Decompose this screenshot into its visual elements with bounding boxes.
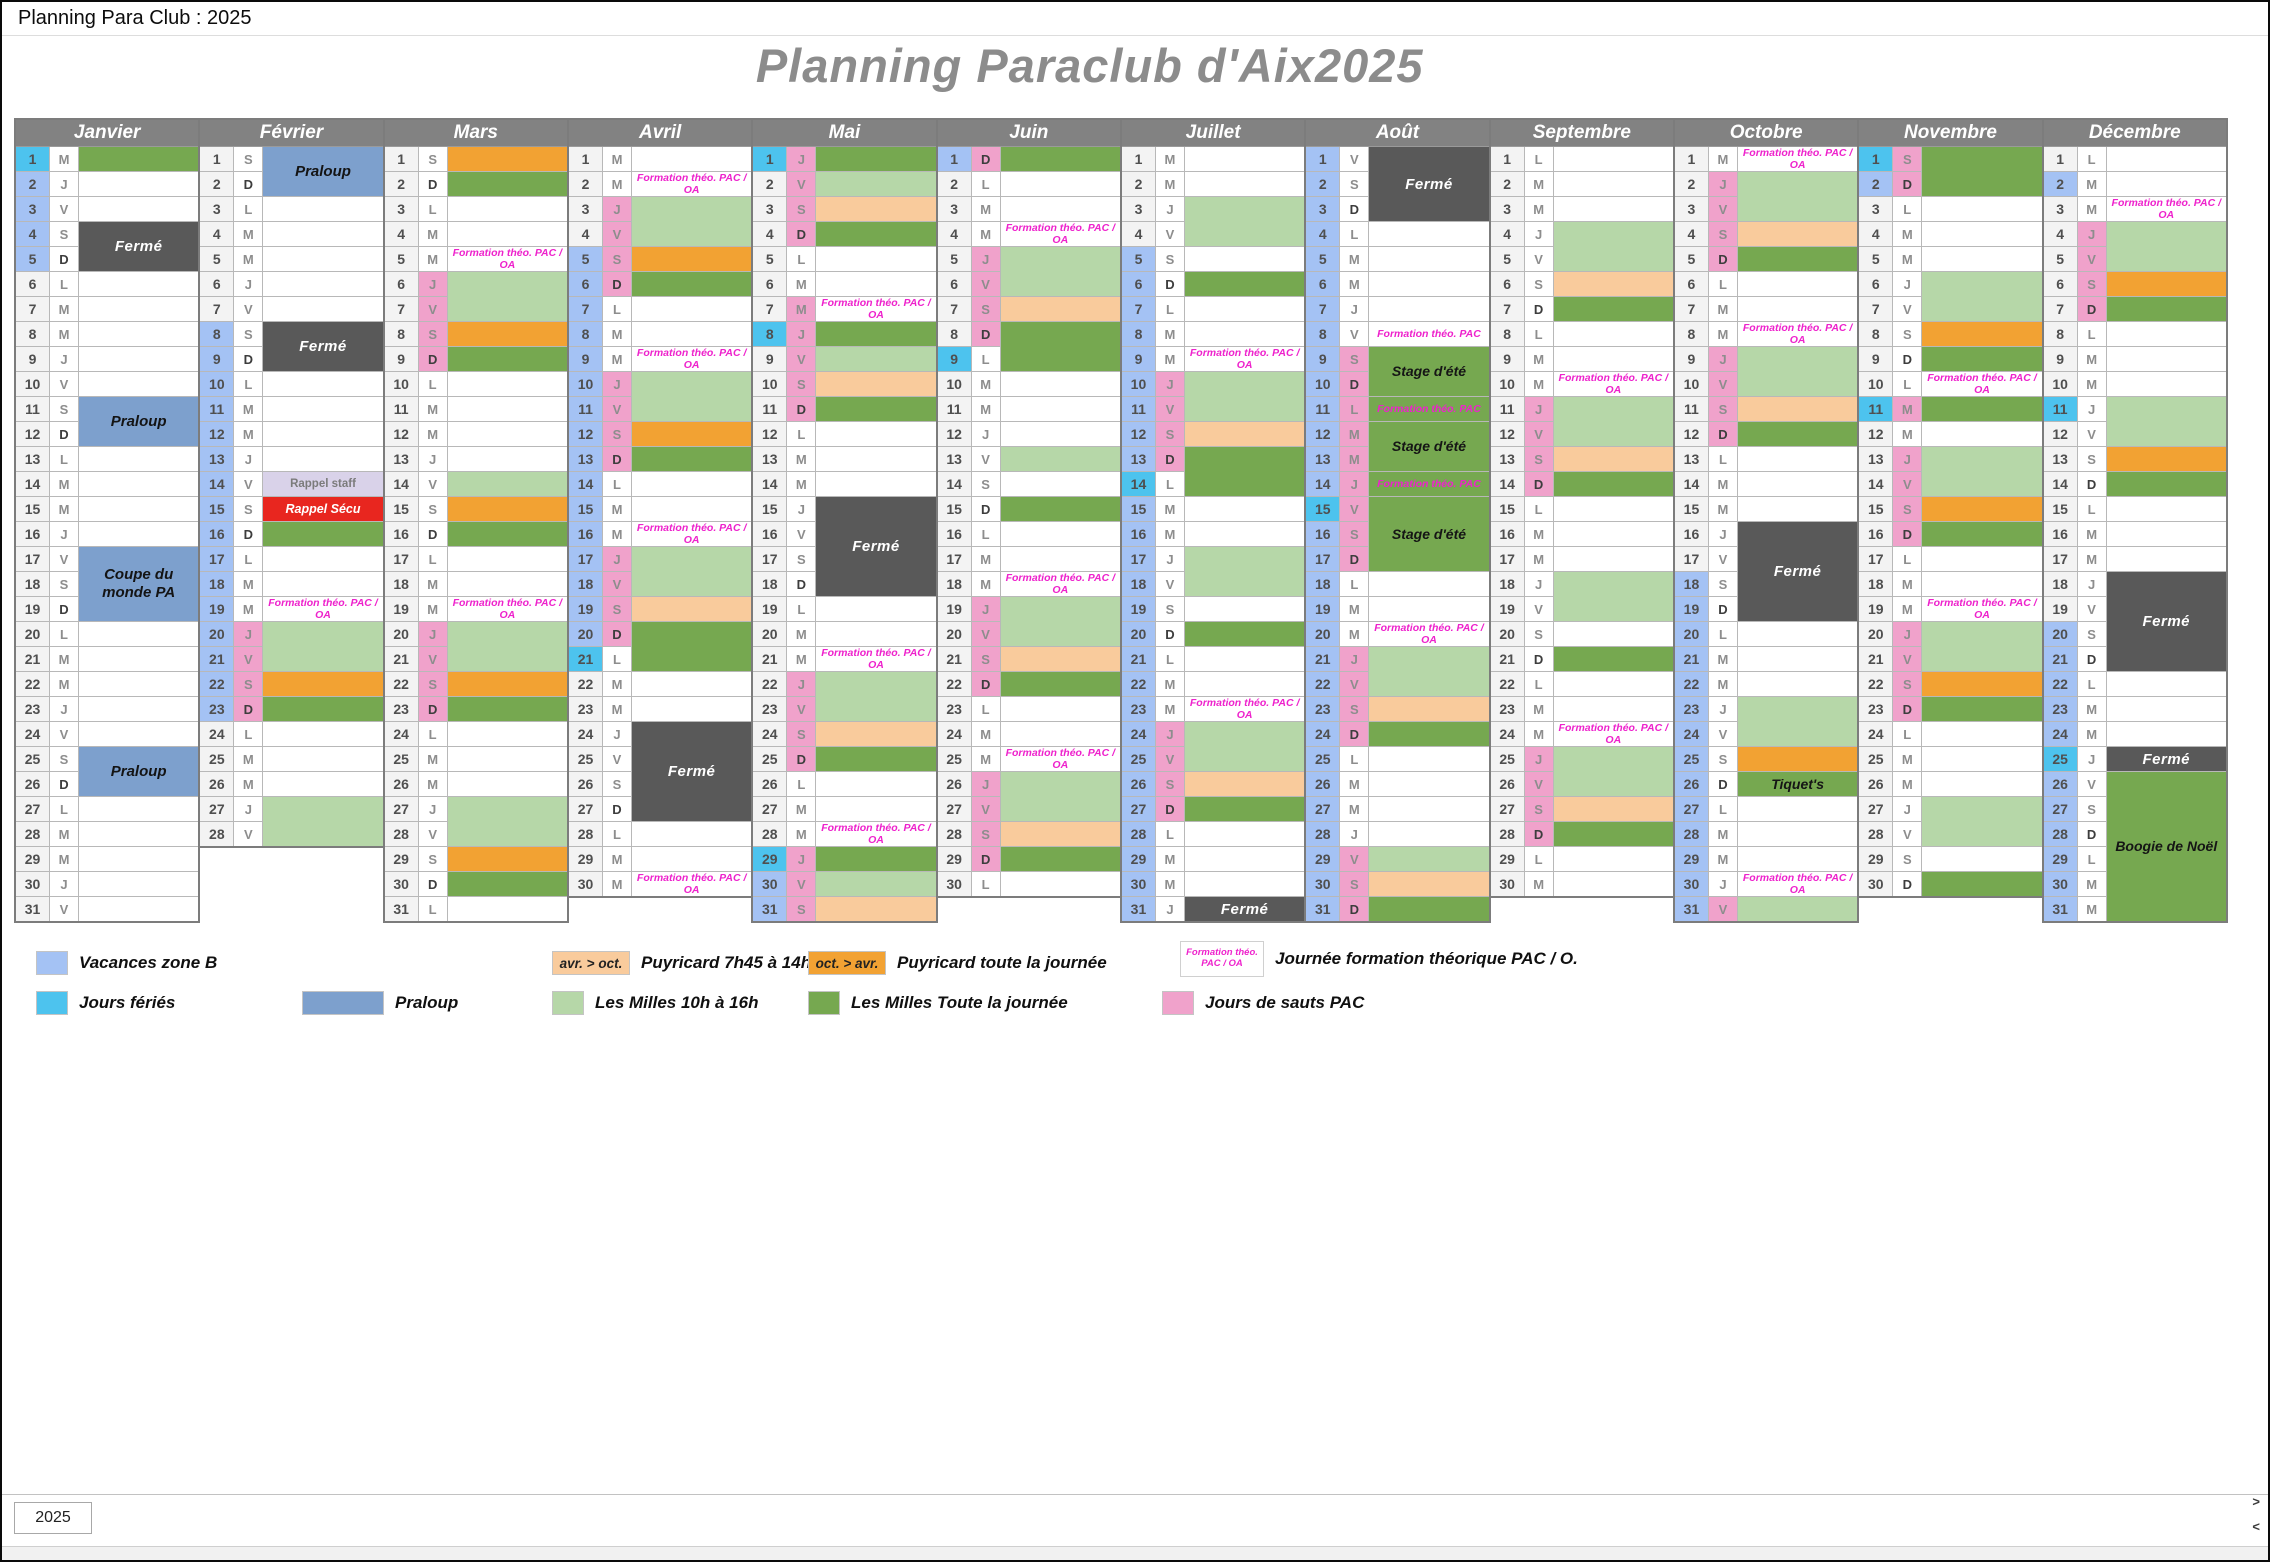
day-letter-cell[interactable]: J [1893,447,1921,471]
event-cell[interactable] [79,272,198,296]
day-number-cell[interactable]: 25 [16,747,49,771]
day-letter-cell[interactable]: L [603,822,631,846]
event-cell[interactable] [1185,272,1304,296]
day-letter-cell[interactable]: M [234,772,262,796]
day-number-cell[interactable]: 22 [1675,672,1708,696]
day-letter-cell[interactable]: S [1893,322,1921,346]
day-letter-cell[interactable]: S [2078,447,2106,471]
day-number-cell[interactable]: 3 [16,197,49,221]
day-letter-cell[interactable]: M [787,472,815,496]
day-number-cell[interactable]: 5 [1859,247,1892,271]
day-number-cell[interactable]: 28 [1491,822,1524,846]
day-letter-cell[interactable]: M [1156,522,1184,546]
day-number-cell[interactable]: 19 [1675,597,1708,621]
day-number-cell[interactable]: 7 [200,297,233,321]
event-cell[interactable] [1738,647,1857,671]
day-number-cell[interactable]: 8 [1122,322,1155,346]
event-cell[interactable] [79,897,198,921]
event-cell[interactable]: Boogie de Noël [2107,772,2226,921]
day-number-cell[interactable]: 13 [1491,447,1524,471]
day-number-cell[interactable]: 18 [1491,572,1524,596]
day-letter-cell[interactable]: J [419,272,447,296]
day-number-cell[interactable]: 2 [938,172,971,196]
day-number-cell[interactable]: 24 [1122,722,1155,746]
month-header[interactable]: Avril [569,120,751,147]
day-number-cell[interactable]: 15 [569,497,602,521]
event-cell[interactable] [1738,222,1857,246]
day-letter-cell[interactable]: V [50,547,78,571]
day-number-cell[interactable]: 28 [938,822,971,846]
day-letter-cell[interactable]: V [787,697,815,721]
event-cell[interactable] [448,847,567,871]
day-number-cell[interactable]: 11 [569,397,602,421]
month-header[interactable]: Novembre [1859,120,2041,147]
event-cell[interactable] [816,147,935,171]
day-letter-cell[interactable]: M [2078,172,2106,196]
day-letter-cell[interactable]: J [972,597,1000,621]
day-number-cell[interactable]: 23 [1491,697,1524,721]
event-cell[interactable]: Formation théo. PAC / OA [1738,872,1857,896]
event-cell[interactable] [1185,622,1304,646]
event-cell[interactable] [1001,647,1120,671]
day-number-cell[interactable]: 22 [2044,672,2077,696]
event-cell[interactable]: Rappel Sécu [263,497,382,521]
event-cell[interactable] [263,722,382,746]
day-letter-cell[interactable]: M [603,497,631,521]
event-cell[interactable] [263,672,382,696]
event-cell[interactable] [1554,447,1673,471]
day-number-cell[interactable]: 31 [1122,897,1155,921]
day-number-cell[interactable]: 20 [1491,622,1524,646]
day-letter-cell[interactable]: M [234,747,262,771]
day-letter-cell[interactable]: V [419,297,447,321]
day-letter-cell[interactable]: L [1893,197,1921,221]
day-letter-cell[interactable]: S [50,747,78,771]
day-number-cell[interactable]: 15 [2044,497,2077,521]
day-letter-cell[interactable]: M [787,297,815,321]
day-number-cell[interactable]: 27 [569,797,602,821]
day-number-cell[interactable]: 15 [1675,497,1708,521]
event-cell[interactable] [1738,672,1857,696]
event-cell[interactable] [1554,547,1673,571]
day-letter-cell[interactable]: M [972,222,1000,246]
day-letter-cell[interactable]: S [234,672,262,696]
day-letter-cell[interactable]: M [1709,147,1737,171]
day-letter-cell[interactable]: L [787,422,815,446]
month-header[interactable]: Février [200,120,382,147]
event-cell[interactable] [1554,472,1673,496]
event-cell[interactable] [1185,722,1304,771]
day-letter-cell[interactable]: D [50,422,78,446]
day-number-cell[interactable]: 16 [1306,522,1339,546]
event-cell[interactable]: Formation théo. PAC / OA [816,297,935,321]
event-cell[interactable] [263,247,382,271]
day-letter-cell[interactable]: L [972,697,1000,721]
day-number-cell[interactable]: 20 [2044,622,2077,646]
day-number-cell[interactable]: 8 [938,322,971,346]
day-letter-cell[interactable]: V [1893,647,1921,671]
event-cell[interactable] [1738,797,1857,821]
event-cell[interactable] [1922,497,2041,521]
day-letter-cell[interactable]: J [603,197,631,221]
day-letter-cell[interactable]: S [787,722,815,746]
day-letter-cell[interactable]: M [419,222,447,246]
event-cell[interactable]: Formation théo. PAC / OA [1185,347,1304,371]
day-number-cell[interactable]: 31 [1675,897,1708,921]
day-number-cell[interactable]: 11 [1491,397,1524,421]
event-cell[interactable] [448,547,567,571]
day-letter-cell[interactable]: L [1340,222,1368,246]
event-cell[interactable] [1922,247,2041,271]
event-cell[interactable] [1922,422,2041,446]
day-number-cell[interactable]: 31 [16,897,49,921]
day-letter-cell[interactable]: L [2078,847,2106,871]
day-number-cell[interactable]: 31 [1306,897,1339,921]
day-letter-cell[interactable]: V [1156,572,1184,596]
day-number-cell[interactable]: 8 [753,322,786,346]
day-number-cell[interactable]: 25 [753,747,786,771]
event-cell[interactable] [632,622,751,671]
day-letter-cell[interactable]: D [2078,822,2106,846]
day-number-cell[interactable]: 12 [200,422,233,446]
event-cell[interactable] [632,147,751,171]
event-cell[interactable] [1922,572,2041,596]
event-cell[interactable] [632,372,751,421]
day-number-cell[interactable]: 30 [1122,872,1155,896]
day-letter-cell[interactable]: M [603,697,631,721]
day-number-cell[interactable]: 18 [385,572,418,596]
event-cell[interactable] [448,222,567,246]
day-letter-cell[interactable]: D [50,772,78,796]
day-number-cell[interactable]: 14 [200,472,233,496]
day-number-cell[interactable]: 7 [1122,297,1155,321]
day-number-cell[interactable]: 7 [753,297,786,321]
day-number-cell[interactable]: 19 [1491,597,1524,621]
day-number-cell[interactable]: 20 [1122,622,1155,646]
event-cell[interactable] [1922,522,2041,546]
day-number-cell[interactable]: 26 [16,772,49,796]
day-number-cell[interactable]: 20 [1675,622,1708,646]
day-number-cell[interactable]: 16 [16,522,49,546]
day-number-cell[interactable]: 23 [1122,697,1155,721]
day-letter-cell[interactable]: V [1156,747,1184,771]
day-number-cell[interactable]: 22 [385,672,418,696]
event-cell[interactable] [816,372,935,396]
day-letter-cell[interactable]: V [1709,897,1737,921]
day-number-cell[interactable]: 27 [1306,797,1339,821]
day-number-cell[interactable]: 20 [200,622,233,646]
day-number-cell[interactable]: 21 [1491,647,1524,671]
day-number-cell[interactable]: 26 [1675,772,1708,796]
event-cell[interactable] [1922,672,2041,696]
day-letter-cell[interactable]: M [2078,897,2106,921]
day-letter-cell[interactable]: M [419,772,447,796]
day-number-cell[interactable]: 24 [1491,722,1524,746]
day-letter-cell[interactable]: L [419,547,447,571]
day-number-cell[interactable]: 6 [1306,272,1339,296]
day-letter-cell[interactable]: M [1525,347,1553,371]
day-number-cell[interactable]: 20 [385,622,418,646]
event-cell[interactable] [2107,372,2226,396]
day-number-cell[interactable]: 19 [1306,597,1339,621]
day-letter-cell[interactable]: J [603,547,631,571]
event-cell[interactable] [448,397,567,421]
day-letter-cell[interactable]: M [1709,847,1737,871]
day-number-cell[interactable]: 28 [1675,822,1708,846]
day-number-cell[interactable]: 27 [1675,797,1708,821]
day-letter-cell[interactable]: D [2078,647,2106,671]
event-cell[interactable] [1001,297,1120,321]
event-cell[interactable] [263,447,382,471]
day-letter-cell[interactable]: S [2078,622,2106,646]
day-letter-cell[interactable]: V [1340,672,1368,696]
day-letter-cell[interactable]: L [972,172,1000,196]
day-number-cell[interactable]: 24 [16,722,49,746]
event-cell[interactable] [1738,172,1857,221]
event-cell[interactable] [1738,397,1857,421]
day-number-cell[interactable]: 25 [1491,747,1524,771]
day-letter-cell[interactable]: M [787,647,815,671]
day-number-cell[interactable]: 8 [2044,322,2077,346]
event-cell[interactable] [1185,372,1304,421]
day-letter-cell[interactable]: M [1156,697,1184,721]
event-cell[interactable] [1001,472,1120,496]
day-letter-cell[interactable]: J [234,447,262,471]
day-number-cell[interactable]: 26 [569,772,602,796]
day-number-cell[interactable]: 6 [2044,272,2077,296]
event-cell[interactable]: Formation théo. PAC / OA [1001,572,1120,596]
day-letter-cell[interactable]: M [2078,547,2106,571]
day-letter-cell[interactable]: J [1156,722,1184,746]
event-cell[interactable] [1369,247,1488,271]
day-number-cell[interactable]: 16 [1122,522,1155,546]
day-number-cell[interactable]: 14 [569,472,602,496]
event-cell[interactable] [79,147,198,171]
day-number-cell[interactable]: 19 [1859,597,1892,621]
day-number-cell[interactable]: 24 [753,722,786,746]
day-letter-cell[interactable]: L [972,522,1000,546]
event-cell[interactable]: Formation théo. PAC [1369,322,1488,346]
event-cell[interactable]: Fermé [632,722,751,821]
day-letter-cell[interactable]: S [603,422,631,446]
day-number-cell[interactable]: 25 [385,747,418,771]
day-number-cell[interactable]: 1 [938,147,971,171]
event-cell[interactable] [263,422,382,446]
day-letter-cell[interactable]: J [972,422,1000,446]
day-letter-cell[interactable]: J [1709,697,1737,721]
day-number-cell[interactable]: 18 [938,572,971,596]
day-number-cell[interactable]: 13 [1675,447,1708,471]
day-letter-cell[interactable]: D [50,597,78,621]
day-letter-cell[interactable]: L [1525,497,1553,521]
day-number-cell[interactable]: 1 [1306,147,1339,171]
day-number-cell[interactable]: 20 [1306,622,1339,646]
event-cell[interactable] [263,547,382,571]
day-number-cell[interactable]: 14 [16,472,49,496]
day-letter-cell[interactable]: L [2078,497,2106,521]
day-number-cell[interactable]: 31 [753,897,786,921]
event-cell[interactable] [1738,247,1857,271]
event-cell[interactable] [79,722,198,746]
day-letter-cell[interactable]: M [50,847,78,871]
day-number-cell[interactable]: 9 [2044,347,2077,371]
day-number-cell[interactable]: 9 [569,347,602,371]
event-cell[interactable] [1554,222,1673,271]
day-letter-cell[interactable]: S [1340,347,1368,371]
day-number-cell[interactable]: 2 [2044,172,2077,196]
day-number-cell[interactable]: 4 [1859,222,1892,246]
day-number-cell[interactable]: 18 [2044,572,2077,596]
event-cell[interactable] [79,497,198,521]
day-letter-cell[interactable]: V [1709,372,1737,396]
event-cell[interactable] [632,272,751,296]
day-number-cell[interactable]: 13 [569,447,602,471]
day-number-cell[interactable]: 4 [1306,222,1339,246]
event-cell[interactable] [816,672,935,721]
day-letter-cell[interactable]: V [234,822,262,846]
day-letter-cell[interactable]: S [972,297,1000,321]
day-letter-cell[interactable]: M [972,747,1000,771]
day-letter-cell[interactable]: M [2078,522,2106,546]
day-letter-cell[interactable]: V [1340,322,1368,346]
day-number-cell[interactable]: 28 [753,822,786,846]
day-letter-cell[interactable]: L [1893,722,1921,746]
day-letter-cell[interactable]: S [419,322,447,346]
event-cell[interactable]: Formation théo. PAC / OA [632,347,751,371]
event-cell[interactable] [263,272,382,296]
event-cell[interactable] [1922,847,2041,871]
day-number-cell[interactable]: 22 [1491,672,1524,696]
day-number-cell[interactable]: 15 [16,497,49,521]
day-number-cell[interactable]: 15 [753,497,786,521]
day-number-cell[interactable]: 17 [753,547,786,571]
event-cell[interactable] [79,447,198,471]
event-cell[interactable] [1554,672,1673,696]
day-letter-cell[interactable]: V [1525,247,1553,271]
event-cell[interactable] [1001,847,1120,871]
day-number-cell[interactable]: 17 [938,547,971,571]
day-number-cell[interactable]: 12 [2044,422,2077,446]
day-letter-cell[interactable]: J [50,697,78,721]
event-cell[interactable] [448,522,567,546]
day-number-cell[interactable]: 23 [385,697,418,721]
day-letter-cell[interactable]: J [2078,222,2106,246]
day-number-cell[interactable]: 13 [200,447,233,471]
day-letter-cell[interactable]: J [419,797,447,821]
day-letter-cell[interactable]: L [1525,147,1553,171]
day-number-cell[interactable]: 21 [200,647,233,671]
event-cell[interactable] [448,497,567,521]
day-number-cell[interactable]: 23 [2044,697,2077,721]
day-letter-cell[interactable]: M [787,447,815,471]
day-number-cell[interactable]: 27 [2044,797,2077,821]
day-letter-cell[interactable]: M [972,572,1000,596]
event-cell[interactable]: Formation théo. PAC / OA [1738,147,1857,171]
day-number-cell[interactable]: 4 [938,222,971,246]
day-letter-cell[interactable]: M [1893,222,1921,246]
day-letter-cell[interactable]: D [972,497,1000,521]
event-cell[interactable] [1738,447,1857,471]
day-number-cell[interactable]: 4 [200,222,233,246]
day-letter-cell[interactable]: D [1156,272,1184,296]
day-number-cell[interactable]: 3 [385,197,418,221]
event-cell[interactable] [1554,397,1673,446]
day-number-cell[interactable]: 17 [385,547,418,571]
event-cell[interactable] [1922,622,2041,671]
event-cell[interactable]: Formation théo. PAC / OA [448,597,567,621]
event-cell[interactable]: Formation théo. PAC / OA [632,522,751,546]
event-cell[interactable] [1554,872,1673,896]
day-letter-cell[interactable]: V [2078,247,2106,271]
day-letter-cell[interactable]: D [419,697,447,721]
day-letter-cell[interactable]: S [787,897,815,921]
day-number-cell[interactable]: 23 [1675,697,1708,721]
event-cell[interactable] [632,422,751,446]
day-number-cell[interactable]: 30 [1306,872,1339,896]
day-number-cell[interactable]: 13 [2044,447,2077,471]
day-number-cell[interactable]: 12 [1859,422,1892,446]
day-letter-cell[interactable]: M [603,147,631,171]
day-letter-cell[interactable]: L [1525,672,1553,696]
day-letter-cell[interactable]: D [1340,897,1368,921]
day-number-cell[interactable]: 16 [753,522,786,546]
day-number-cell[interactable]: 11 [200,397,233,421]
day-number-cell[interactable]: 12 [16,422,49,446]
event-cell[interactable] [2107,447,2226,471]
event-cell[interactable] [1001,397,1120,421]
day-letter-cell[interactable]: L [603,647,631,671]
day-number-cell[interactable]: 5 [1675,247,1708,271]
day-number-cell[interactable]: 30 [753,872,786,896]
event-cell[interactable] [1738,422,1857,446]
event-cell[interactable]: Fermé [2107,747,2226,771]
day-letter-cell[interactable]: M [2078,347,2106,371]
day-letter-cell[interactable]: S [234,497,262,521]
day-number-cell[interactable]: 9 [1306,347,1339,371]
day-letter-cell[interactable]: V [972,797,1000,821]
event-cell[interactable] [263,197,382,221]
scroll-right-icon[interactable]: > [2252,1489,2260,1514]
day-letter-cell[interactable]: S [1893,147,1921,171]
day-letter-cell[interactable]: M [419,247,447,271]
day-letter-cell[interactable]: D [2078,472,2106,496]
event-cell[interactable] [2107,272,2226,296]
event-cell[interactable] [79,822,198,846]
event-cell[interactable] [448,772,567,796]
day-letter-cell[interactable]: L [419,897,447,921]
day-letter-cell[interactable]: M [1525,697,1553,721]
day-letter-cell[interactable]: M [787,797,815,821]
day-number-cell[interactable]: 3 [1859,197,1892,221]
day-number-cell[interactable]: 25 [1675,747,1708,771]
day-letter-cell[interactable]: L [50,272,78,296]
event-cell[interactable] [1922,272,2041,321]
day-number-cell[interactable]: 2 [1122,172,1155,196]
day-letter-cell[interactable]: M [50,647,78,671]
event-cell[interactable] [1738,497,1857,521]
day-letter-cell[interactable]: L [603,297,631,321]
day-letter-cell[interactable]: M [234,247,262,271]
day-number-cell[interactable]: 13 [16,447,49,471]
event-cell[interactable] [1554,847,1673,871]
event-cell[interactable] [79,197,198,221]
day-letter-cell[interactable]: L [1525,322,1553,346]
event-cell[interactable] [1922,722,2041,746]
day-number-cell[interactable]: 12 [385,422,418,446]
day-number-cell[interactable]: 28 [385,822,418,846]
day-number-cell[interactable]: 8 [569,322,602,346]
day-number-cell[interactable]: 15 [1306,497,1339,521]
